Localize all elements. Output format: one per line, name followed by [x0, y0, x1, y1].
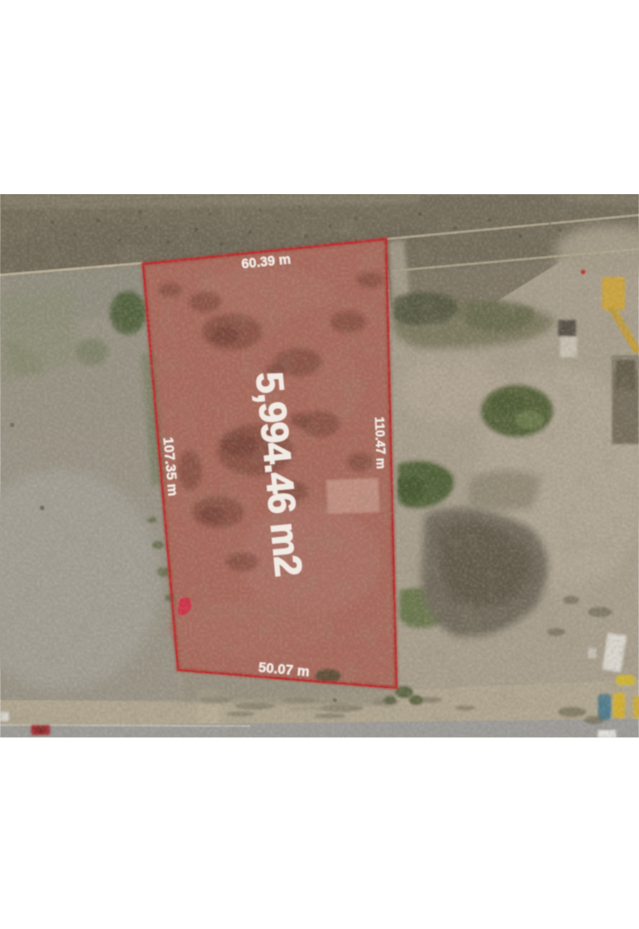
svg-text:110.47 m: 110.47 m [372, 417, 388, 470]
